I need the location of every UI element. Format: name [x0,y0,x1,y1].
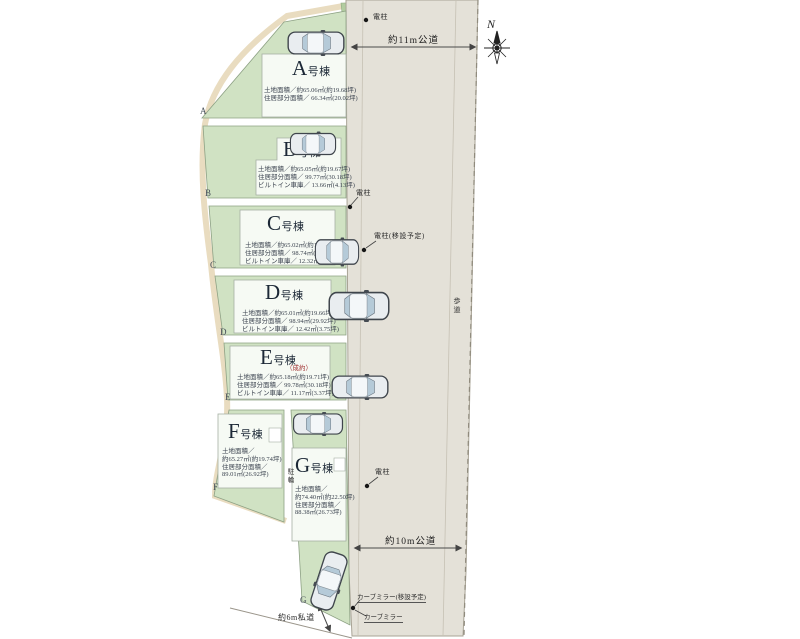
north-label: N [487,17,495,32]
lot-a-area-text: 土地面積／約65.06㎡(約19.68坪) 住居部分面積／ 66.34㎡(20.… [264,87,358,103]
sidewalk-left-label: 歩道 [349,297,359,315]
lot-e-area-text: 土地面積／約65.18㎡(約19.71坪) 住居部分面積／ 99.78㎡(30.… [237,374,334,397]
lot-e-corner-letter: E [225,392,231,402]
top-road-label: 約11m公道 [388,32,439,46]
lot-d-area-text: 土地面積／約65.01㎡(約19.66坪) 住居部分面積／ 98.94㎡(29.… [242,310,339,333]
bottom-road-label: 約10m公道 [385,533,436,547]
private-road-label: 約6m私道 [278,612,315,623]
building-d-title: D号棟 [265,282,304,304]
pole-top-label: 電柱 [373,12,388,22]
sidewalk-right-label: 歩道 [452,297,462,315]
building-f-title: F号棟 [228,421,263,443]
building-c-title: C号棟 [267,213,305,235]
lot-b-area-text: 土地面積／約65.05㎡(約19.67坪) 住居部分面積／ 99.77㎡(30.… [258,166,355,189]
building-a-title: A号棟 [292,58,331,80]
utility-pole-dot-relocate [362,248,366,252]
pole-lower-label: 電柱 [375,467,390,477]
building-g-step [334,458,345,471]
utility-pole-dot-top [364,18,368,22]
lot-g-corner-letter: G [300,595,307,605]
lot-d-corner-letter: D [220,327,227,337]
lot-c-area-text: 土地面積／約65.02㎡(約19.66坪) 住居部分面積／ 98.74㎡(29.… [245,242,342,265]
pole-mid-label: 電柱 [356,188,371,198]
lot-e-sold-note: （成約） [286,362,312,372]
utility-pole-dot-lower [365,484,369,488]
lot-b-corner-letter: B [205,188,211,198]
compass-icon [484,31,510,64]
building-g-title: G号棟 [295,455,334,477]
lot-f-corner-letter: F [213,482,218,492]
site-plan: A B C D E F G A号棟 B号棟 C号棟 D号棟 E号棟 F号棟 G号… [0,0,800,639]
lot-c-corner-letter: C [210,260,216,270]
lot-a-corner-letter: A [200,106,207,116]
curve-mirror-relocate-label: カーブミラー(移設予定) [357,591,426,603]
lot-g-area-text: 土地面積／ 約74.40㎡(約22.50坪) 住居部分面積／ 88.38㎡(26… [295,486,355,517]
building-f-step [269,428,281,442]
pole-relocate-label: 電柱(移設予定) [374,231,425,241]
curve-mirror-label: カーブミラー [364,611,403,623]
utility-pole-dot-mid [348,205,352,209]
bicycle-area-label: 駐輪 [284,468,294,485]
lot-f-area-text: 土地面積／ 約65.27㎡(約19.74坪) 住居部分面積／ 89.01㎡(26… [222,448,282,479]
building-b-title: B号棟 [283,139,321,161]
